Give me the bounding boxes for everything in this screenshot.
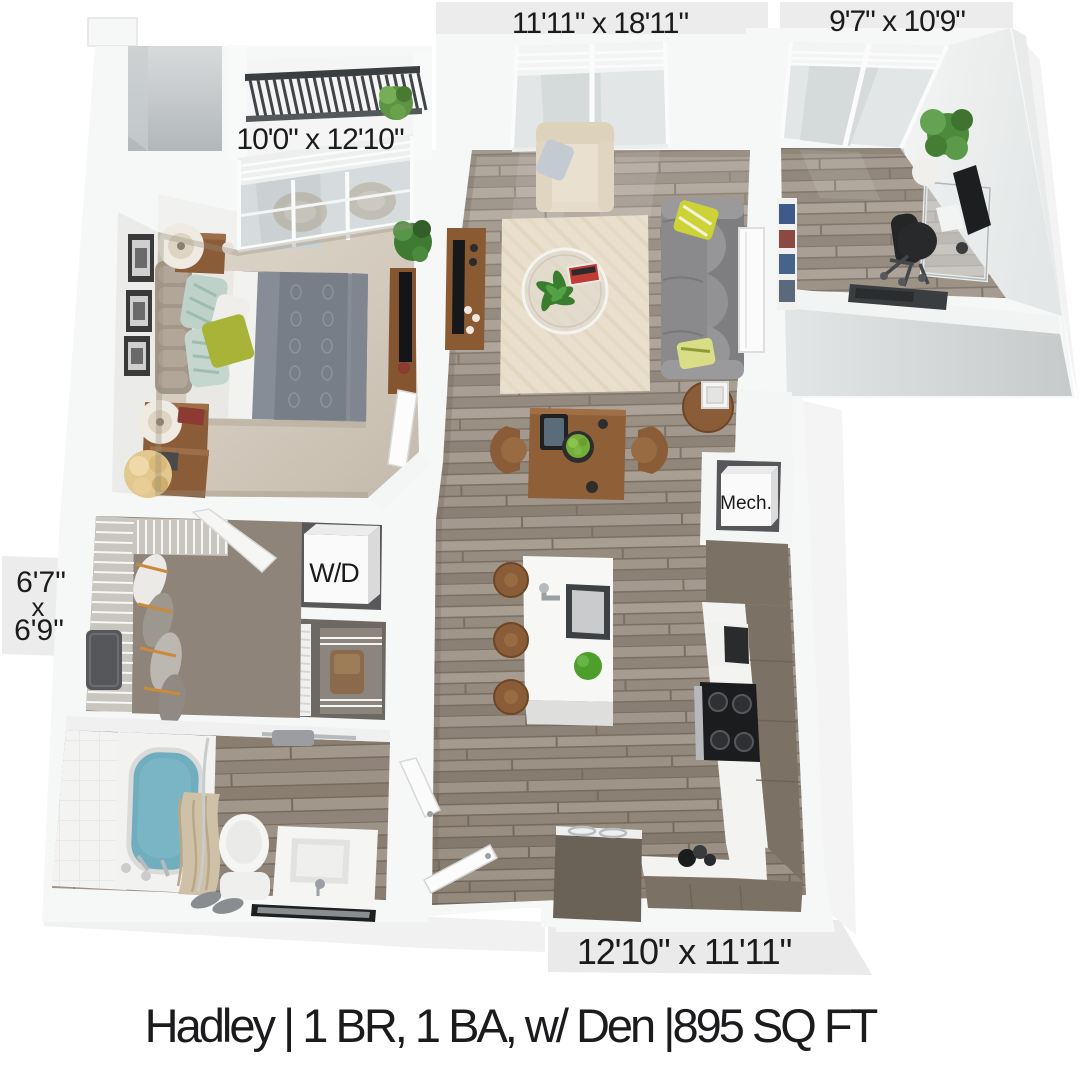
- svg-text:Hadley | 1 BR, 1 BA, w/ Den |8: Hadley | 1 BR, 1 BA, w/ Den |895 SQ FT: [145, 999, 878, 1052]
- svg-text:9'7" x 10'9": 9'7" x 10'9": [829, 5, 965, 38]
- svg-text:6'9": 6'9": [14, 614, 64, 647]
- svg-text:11'11" x 18'11": 11'11" x 18'11": [512, 7, 689, 40]
- svg-text:10'0" x 12'10": 10'0" x 12'10": [236, 123, 404, 156]
- svg-text:W/D: W/D: [309, 558, 359, 588]
- svg-text:Mech.: Mech.: [720, 493, 772, 514]
- svg-text:12'10" x 11'11": 12'10" x 11'11": [577, 931, 792, 972]
